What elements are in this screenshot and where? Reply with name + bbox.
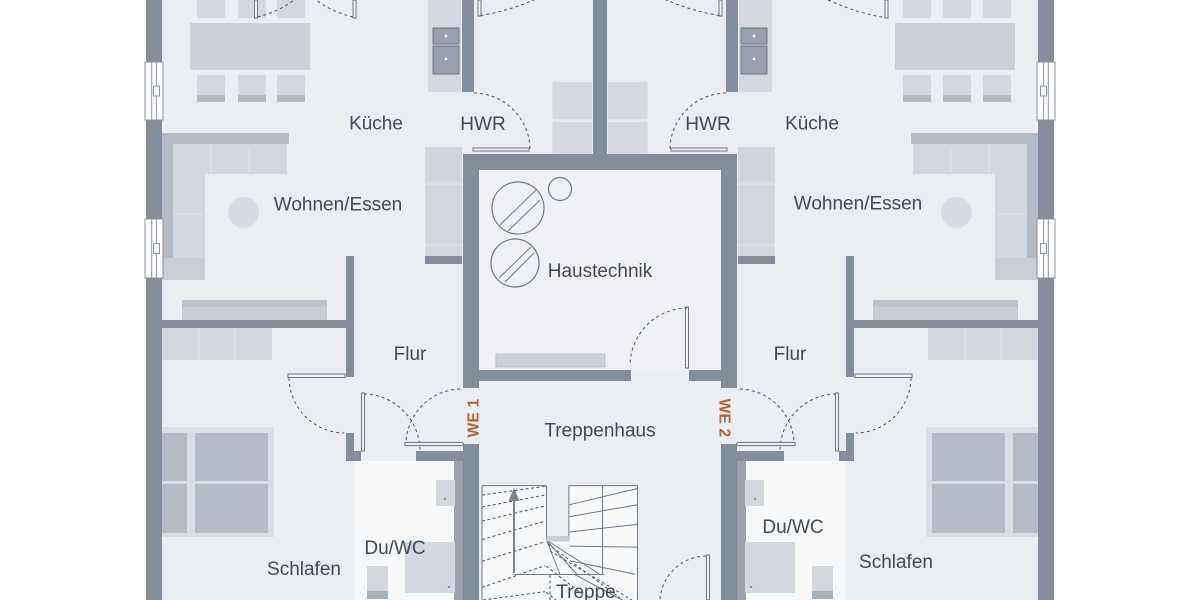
svg-text:Du/WC: Du/WC [364,538,425,559]
svg-text:HWR: HWR [460,114,505,135]
svg-text:Treppenhaus: Treppenhaus [544,421,655,442]
svg-text:Schlafen: Schlafen [859,552,933,573]
svg-text:HWR: HWR [685,114,730,135]
svg-text:Wohnen/Essen: Wohnen/Essen [794,194,923,215]
svg-text:Du/WC: Du/WC [762,517,823,538]
svg-text:WE 1: WE 1 [466,398,483,437]
svg-text:WE 2: WE 2 [716,399,733,438]
svg-text:Küche: Küche [349,114,403,135]
svg-text:Küche: Küche [785,114,839,135]
svg-text:Flur: Flur [774,344,807,365]
svg-text:Schlafen: Schlafen [267,559,341,580]
svg-text:Treppe: Treppe [556,582,616,600]
svg-text:Haustechnik: Haustechnik [548,261,653,282]
svg-text:Flur: Flur [394,344,427,365]
svg-text:Wohnen/Essen: Wohnen/Essen [274,195,403,216]
